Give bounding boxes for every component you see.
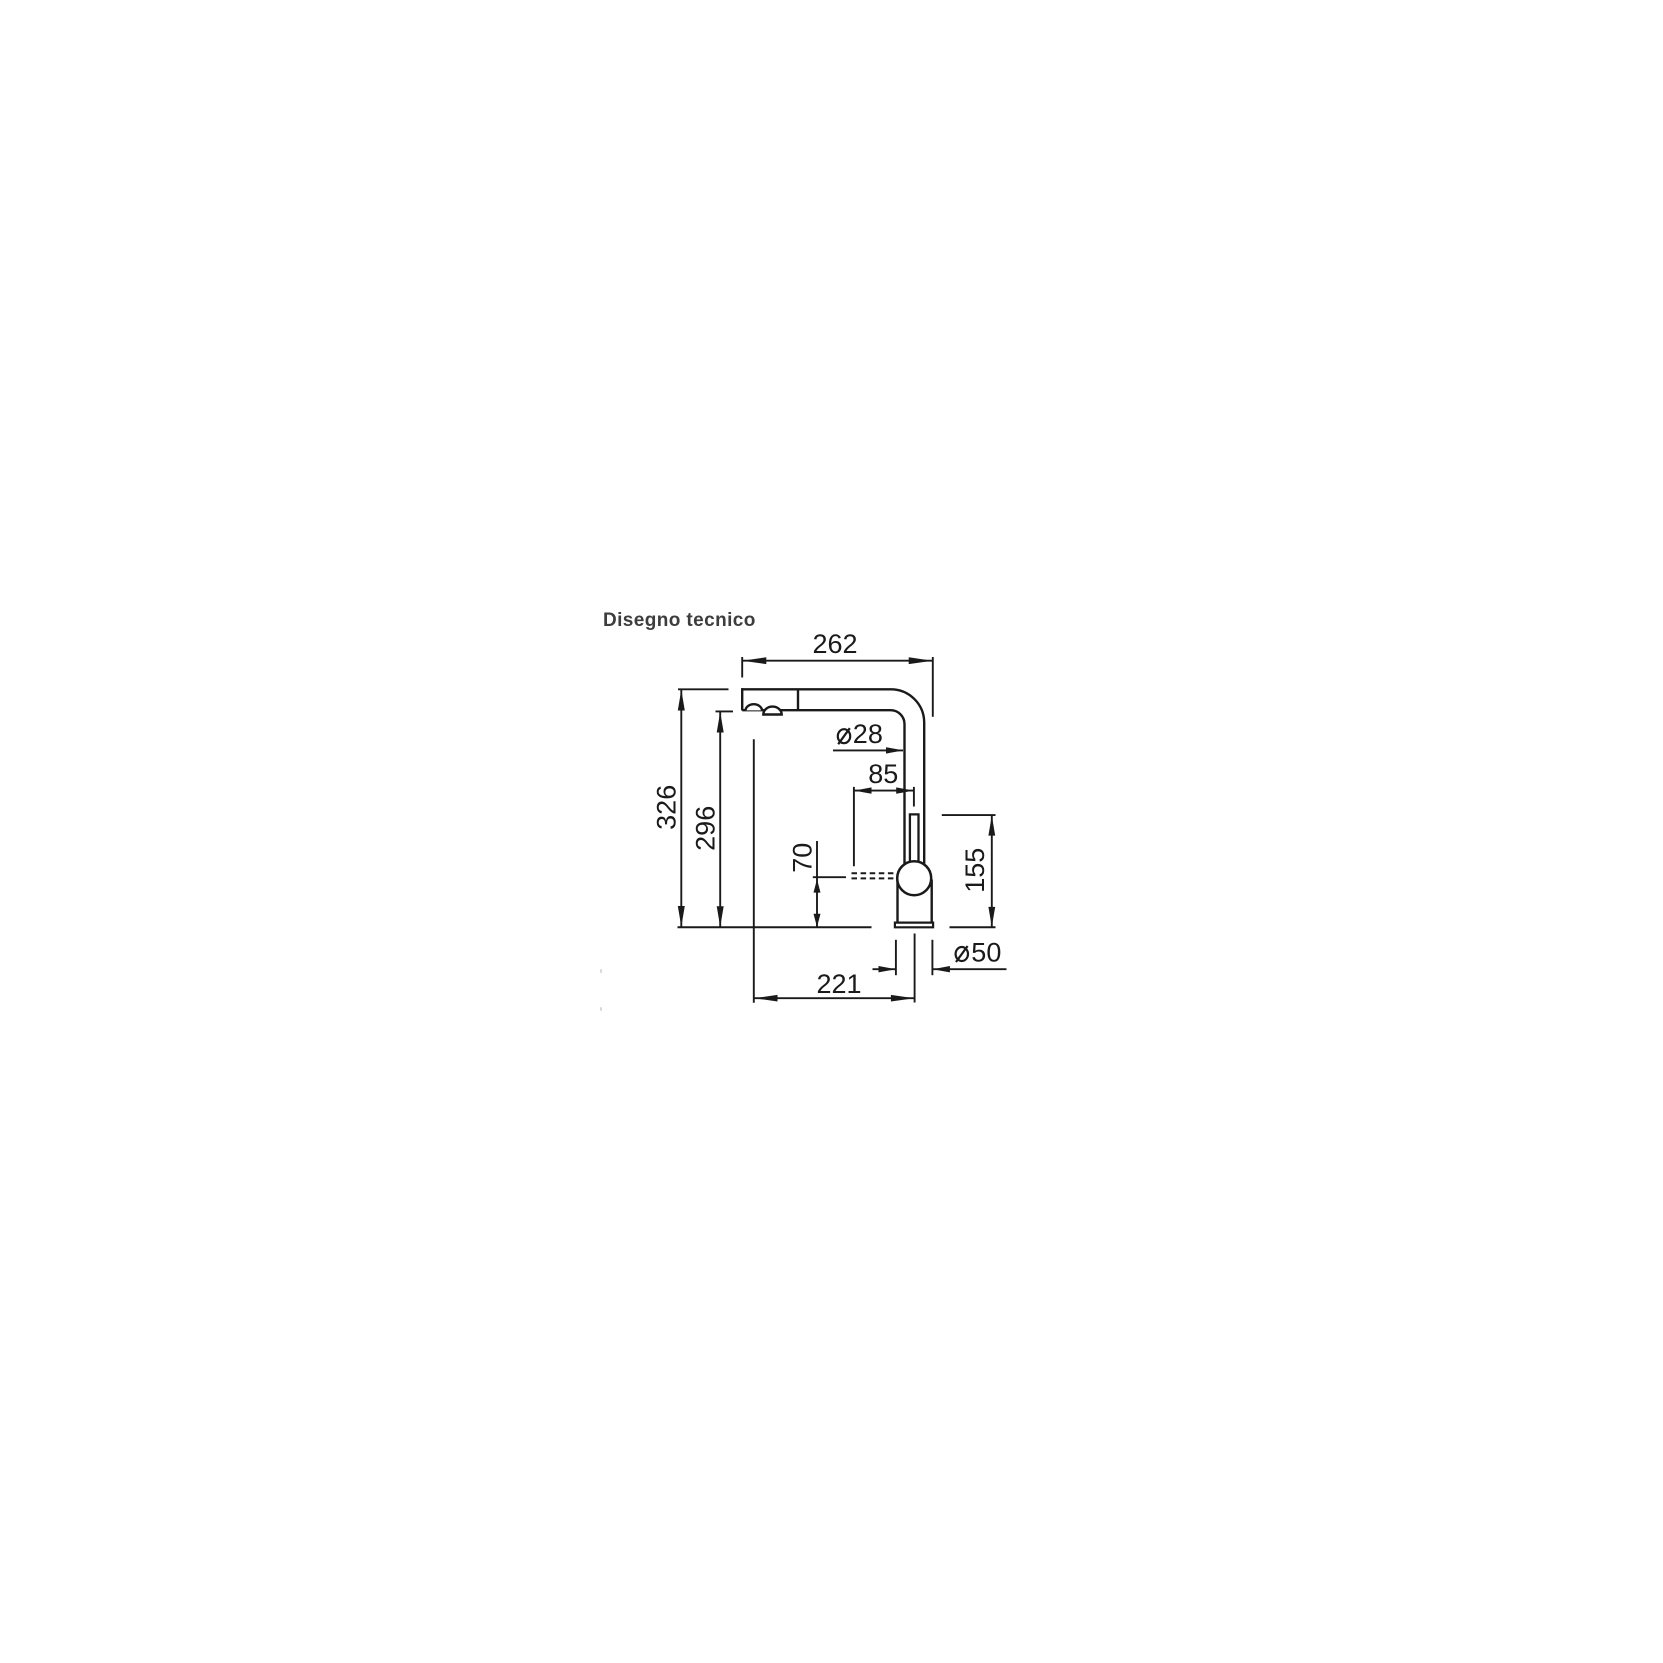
svg-text:70: 70 [787,843,817,873]
svg-text:28: 28 [853,719,883,749]
svg-text:85: 85 [868,759,898,789]
svg-text:221: 221 [816,969,861,999]
svg-text:262: 262 [812,629,857,659]
svg-text:50: 50 [971,938,1001,968]
svg-text:296: 296 [690,806,720,851]
svg-text:155: 155 [960,848,990,893]
svg-text:326: 326 [651,785,681,830]
